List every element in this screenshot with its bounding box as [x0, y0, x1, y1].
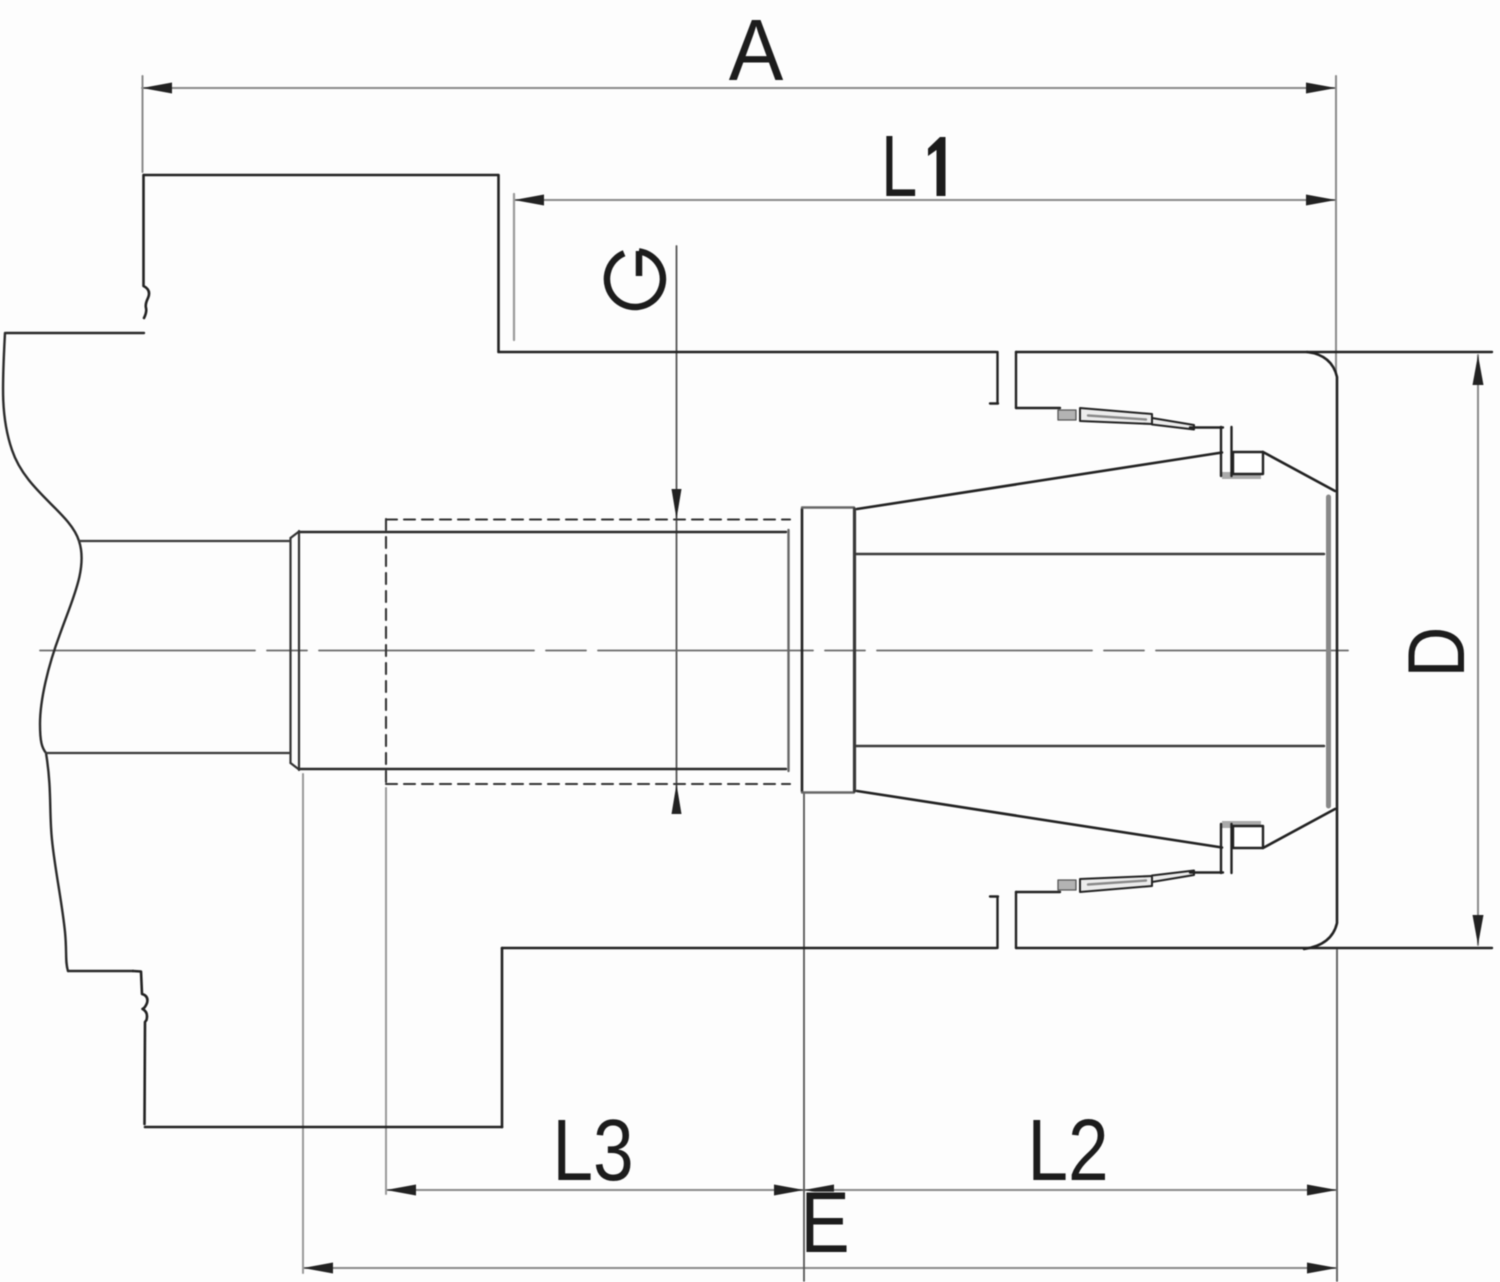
svg-text:E: E — [800, 1174, 849, 1271]
svg-text:L3: L3 — [552, 1102, 633, 1199]
svg-text:L: L — [881, 118, 917, 215]
svg-text:A: A — [729, 2, 784, 99]
svg-text:D: D — [1392, 627, 1483, 678]
svg-text:L2: L2 — [1027, 1102, 1108, 1199]
